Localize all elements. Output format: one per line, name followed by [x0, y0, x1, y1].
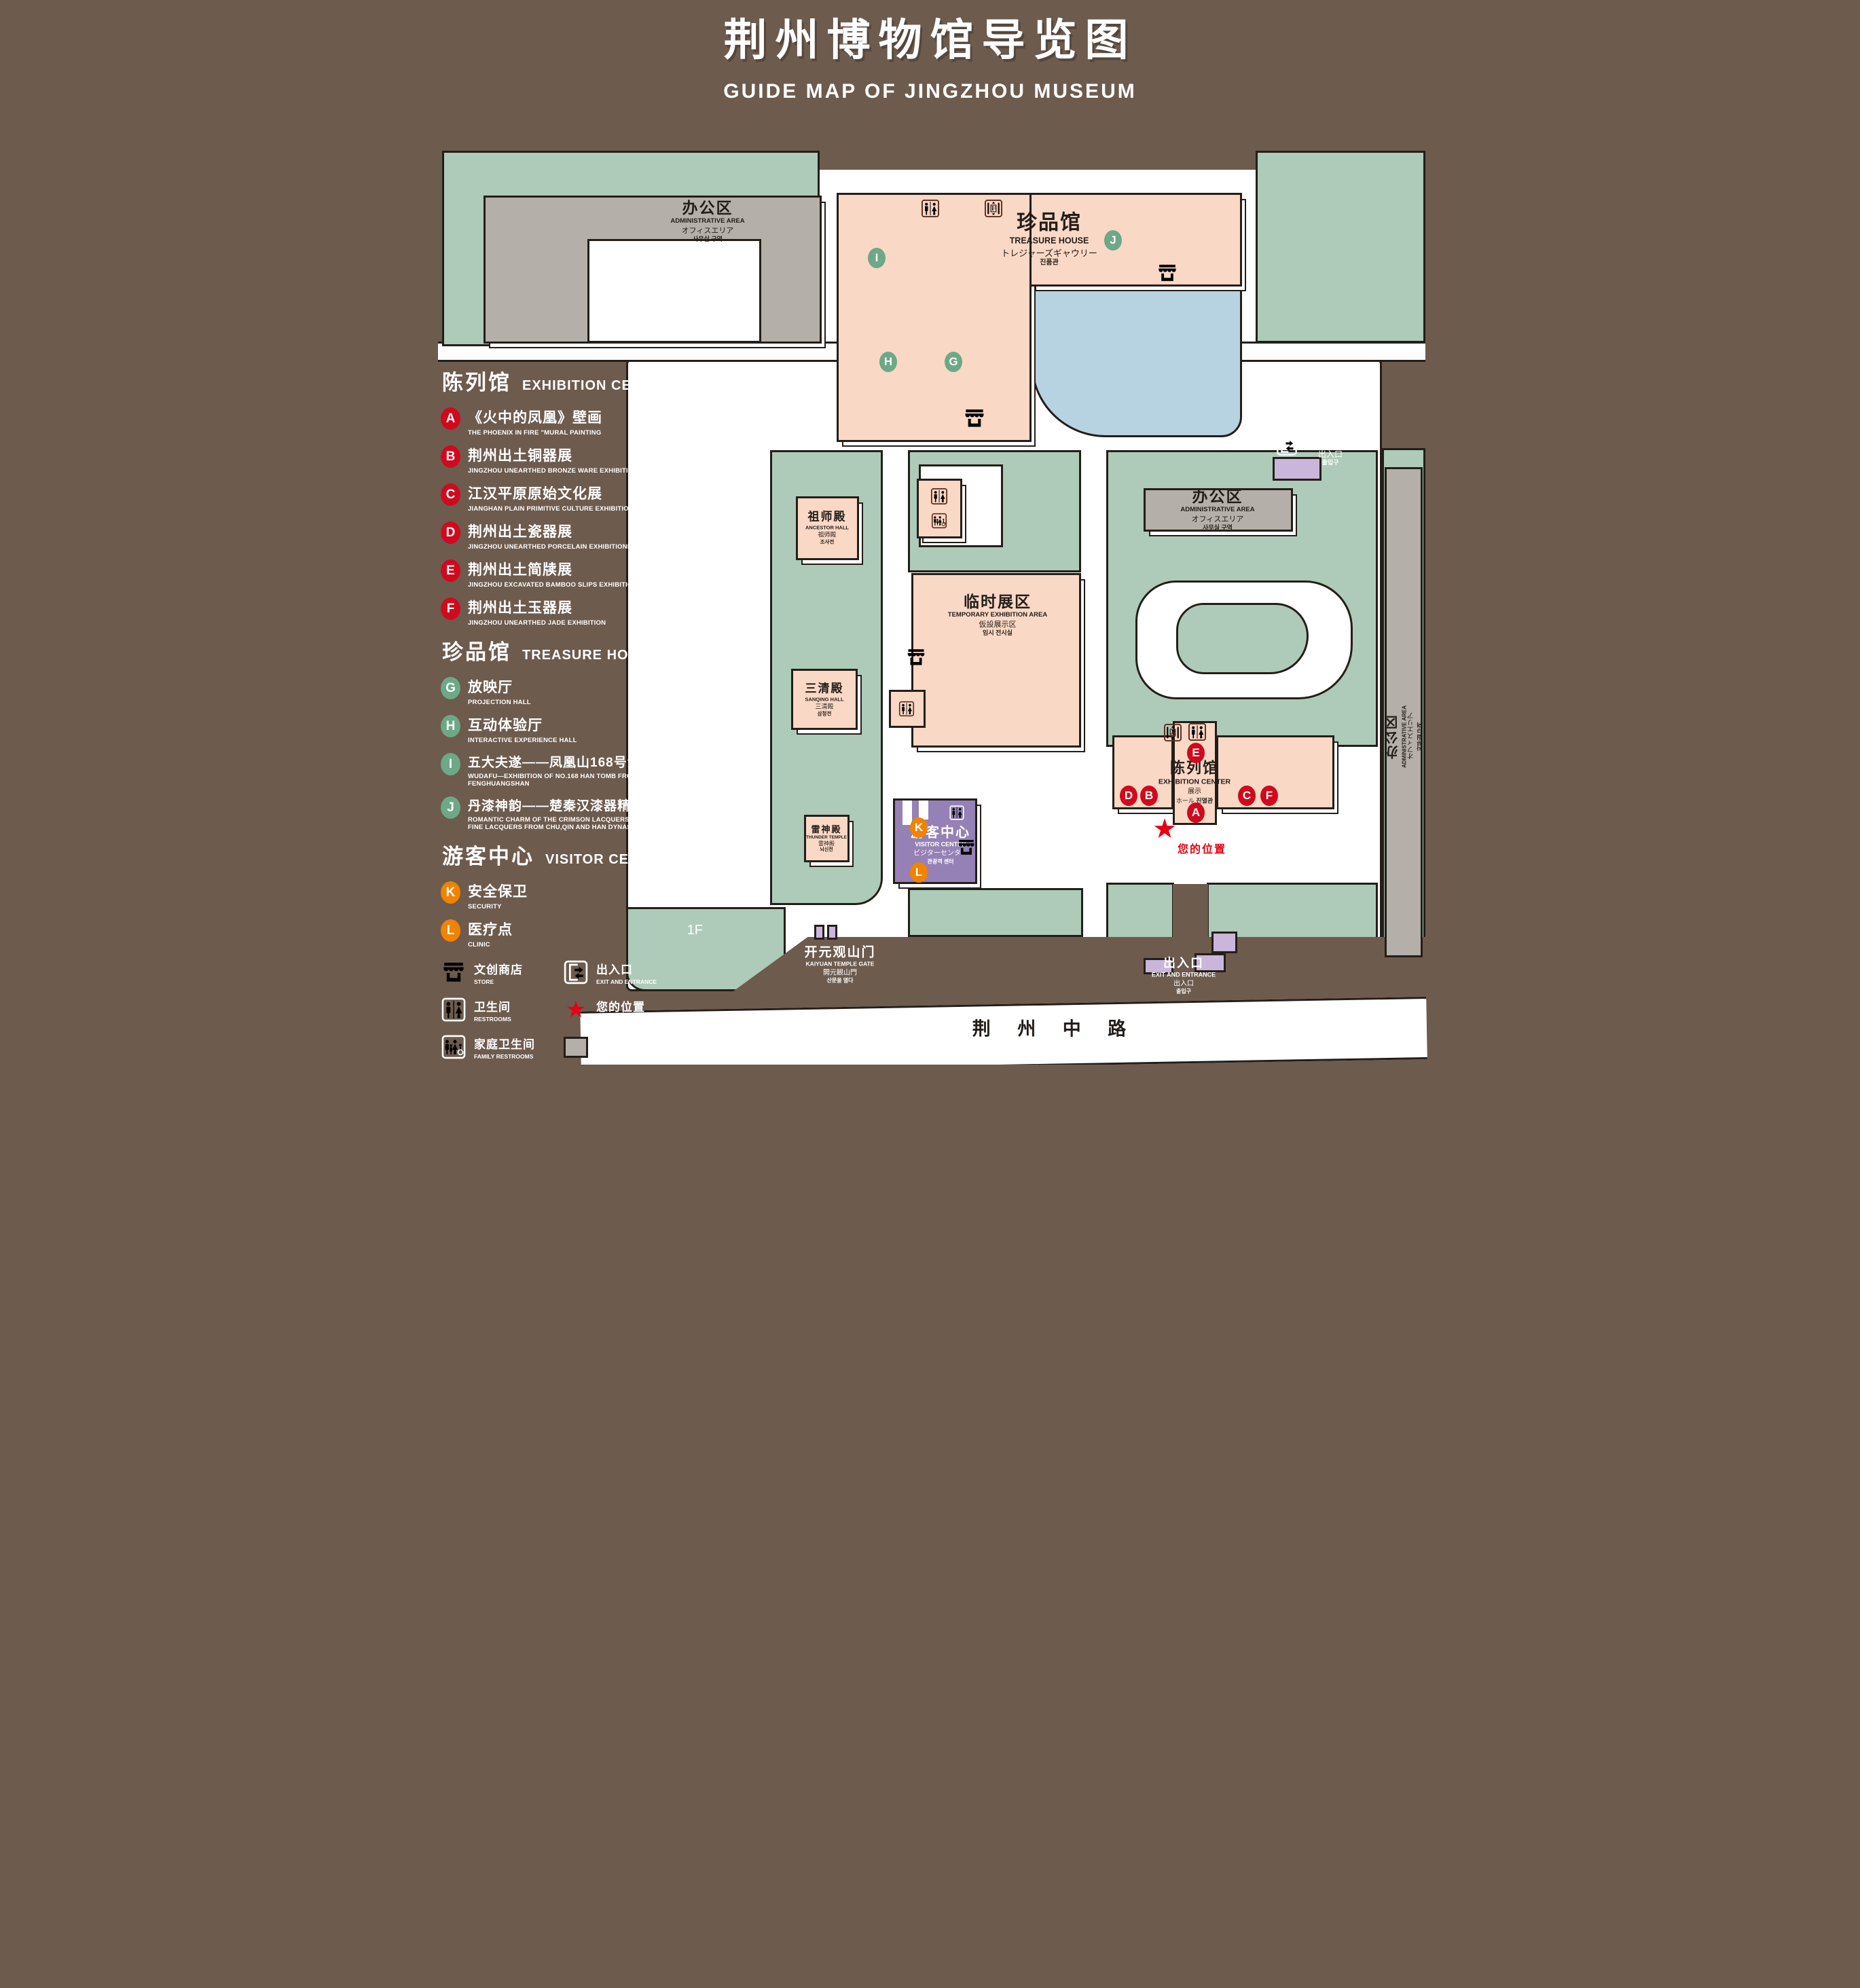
page-title: 荆州博物馆导览图: [433, 5, 1427, 68]
legend-section-treasure-house: 珍品馆 TREASURE HOUSE: [442, 635, 710, 665]
lawn-top-right: [1256, 151, 1425, 343]
marker-B: B: [1140, 786, 1158, 806]
courtyard-admin: [587, 239, 761, 343]
marker-J: J: [1104, 230, 1122, 251]
legend-section-visitor-center: 游客中心 VISITOR CENTER: [442, 839, 710, 870]
office-area-swatch: [563, 1034, 589, 1060]
restroom-icon: [949, 805, 964, 820]
road-name: 荆 州 中 路: [972, 1014, 1137, 1041]
key-family-restrooms: 家庭卫生间 FAMILY RESTROOMS: [441, 1034, 563, 1060]
ancestor-hall-label: 祖师殿 ANCESTOR HALL 祖师殿 조사전: [790, 511, 864, 545]
exit-icon: [563, 959, 589, 985]
visitor-center-notch-1: [902, 800, 912, 825]
building-bottom-exit-booth-3: [1211, 932, 1237, 953]
legend-item-J: J 丹漆神韵——楚秦汉漆器精品展 1-2F ROMANTIC CHARM OF …: [441, 796, 710, 831]
store-icon: [906, 647, 926, 667]
legend-item-C: C 江汉平原原始文化展 1F JIANGHAN PLAIN PRIMITIVE …: [441, 483, 710, 513]
store-icon: [1157, 263, 1178, 284]
legend-item-F: F 荆州出土玉器展 2F JINGZHOU UNEARTHED JADE EXH…: [441, 597, 710, 627]
marker-D: D: [1120, 786, 1137, 806]
accessible-elevator-icon: [1164, 724, 1182, 742]
key-exit: 出入口 EXIT AND ENTRANCE: [563, 959, 710, 985]
legend-section-exhibition-center: 陈列馆 EXHIBITION CENTER: [442, 365, 710, 396]
exit-icon: [1277, 435, 1298, 456]
legend-item-G: G 放映厅 1F PROJECTION HALL: [441, 676, 710, 706]
sanqing-hall-label: 三清殿 SANQING HALL 三清殿 삼청전: [787, 682, 862, 717]
legend-item-L: L 医疗点 1F CLINIC: [441, 919, 710, 949]
restroom-icon: [1188, 723, 1207, 741]
admin-strip-label: 办公区 ADMINISTRATIVE AREA オフィスエリア 사무실 구역: [1385, 705, 1423, 768]
thunder-temple-label: 雷神殿 THUNDER TEMPLE 雷神殿 뇌신전: [799, 824, 854, 853]
elevator-icon: [985, 200, 1003, 218]
key-your-location: ★ 您的位置 YOUR LOCATION: [563, 997, 710, 1023]
marker-F: F: [1260, 786, 1278, 806]
visitor-center-notch-2: [919, 800, 928, 820]
exit-road: [1173, 884, 1208, 944]
your-location-icon: ★: [563, 997, 589, 1023]
legend-item-E: E 荆州出土简牍展 2F JINGZHOU EXCAVATED BAMBOO S…: [441, 559, 710, 589]
key-store: 文创商店 STORE: [441, 959, 563, 985]
key-office-area: 办公区域 OFFICE AREA: [563, 1034, 710, 1060]
legend-symbol-key: 文创商店 STORE 出入口 EXIT AND ENTRANCE 卫生间 RES…: [441, 959, 710, 1065]
garden-island: [1176, 603, 1309, 674]
restroom-icon: [441, 997, 467, 1023]
bottom-exit-label: 出入口 EXIT AND ENTRANCE 出入口 출입구: [1126, 957, 1241, 995]
marker-I: I: [868, 248, 886, 268]
legend-item-I: I 五大夫遂——凤凰山168号汉墓展 2F WUDAFU—EXHIBITION …: [441, 752, 710, 788]
admin-right-label: 办公区 ADMINISTRATIVE AREA オフィスエリア 사무실 구역: [1146, 487, 1289, 532]
kaiyuan-gate-label: 开元观山门 KAIYUAN TEMPLE GATE 開元観山門 산문을 열다: [776, 944, 905, 983]
restroom-icon: [899, 701, 915, 717]
marker-G: G: [945, 352, 962, 372]
marker-E: E: [1187, 743, 1205, 763]
store-icon: [441, 959, 467, 985]
gate-post-1: [814, 925, 824, 940]
marker-H: H: [879, 352, 897, 372]
family-restroom-icon: [932, 513, 947, 529]
key-restrooms: 卫生间 RESTROOMS: [441, 997, 563, 1023]
temporary-exhibition-label: 临时展区 TEMPORARY EXHIBITION AREA 仮設展示区 임시 …: [930, 592, 1065, 637]
gate-post-2: [827, 925, 837, 940]
guide-map-page: 荆州博物馆导览图 GUIDE MAP OF JINGZHOU MUSEUM: [433, 0, 1427, 1065]
marker-C: C: [1238, 786, 1256, 806]
marker-K: K: [910, 817, 928, 838]
your-location-text: 您的位置: [1178, 840, 1226, 856]
store-icon: [957, 838, 976, 857]
legend-item-K: K 安全保卫 1F SECURITY: [441, 881, 710, 910]
page-subtitle: GUIDE MAP OF JINGZHOU MUSEUM: [433, 80, 1427, 103]
your-location-icon: ★: [1152, 815, 1177, 843]
pond: [1031, 286, 1242, 437]
restroom-icon: [931, 488, 948, 505]
family-restroom-icon: [441, 1034, 467, 1060]
store-icon: [964, 407, 986, 430]
marker-L: L: [910, 862, 928, 883]
legend-item-H: H 互动体验厅 1F INTERACTIVE EXPERIENCE HALL: [441, 714, 710, 744]
marker-A: A: [1187, 803, 1205, 823]
legend-item-B: B 荆州出土铜器展 1F JINGZHOU UNEARTHED BRONZE W…: [441, 445, 710, 475]
legend-item-A: A 《火中的凤凰》壁画 1F THE PHOENIX IN FIRE "MURA…: [441, 407, 710, 437]
legend-item-D: D 荆州出土瓷器展 2F JINGZHOU UNEARTHED PORCELAI…: [441, 521, 710, 551]
admin-top-left-label: 办公区 ADMINISTRATIVE AREA オフィスエリア 사무실 구역: [640, 198, 776, 243]
legend-panel: 陈列馆 EXHIBITION CENTER A 《火中的凤凰》壁画 1F THE…: [441, 361, 710, 1065]
lawn-bottom-center: [908, 888, 1083, 937]
restroom-icon: [922, 200, 940, 218]
